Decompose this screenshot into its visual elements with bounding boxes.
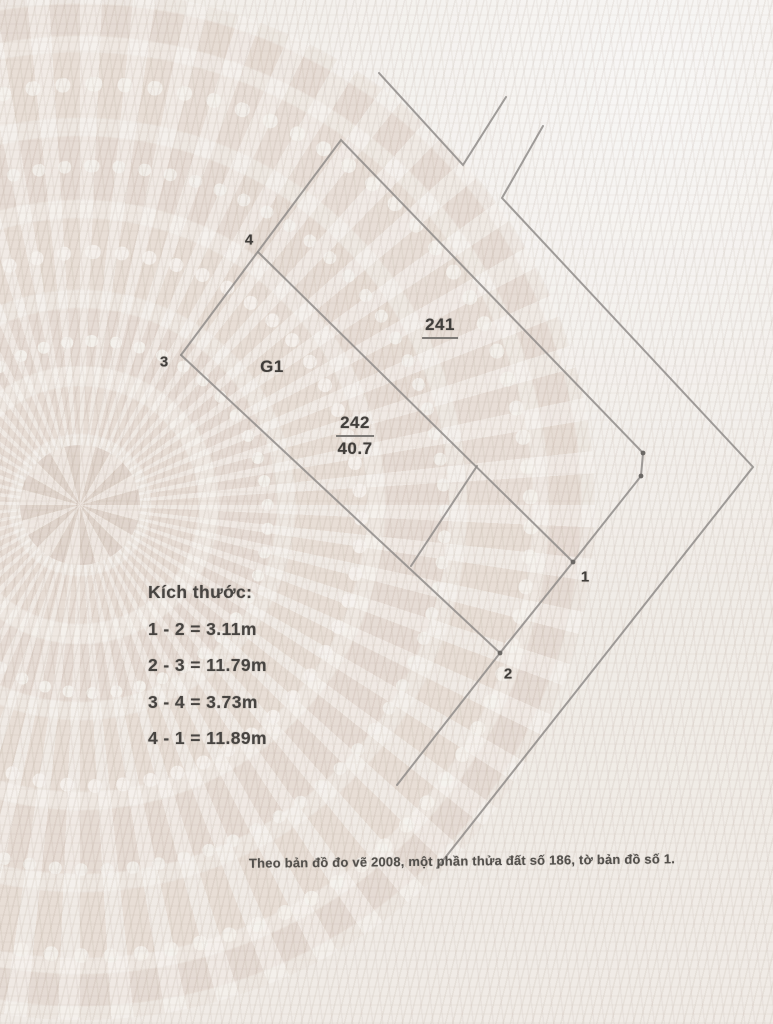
adjacent-parcel-label: 241 bbox=[422, 315, 458, 339]
dimension-item: 2 - 3 = 11.79m bbox=[148, 647, 267, 684]
vertex-label-2: 2 bbox=[504, 666, 512, 683]
scanned-land-certificate-sheet: 4 3 1 2 G1 241 242 40.7 Kích thước: 1 - … bbox=[0, 0, 773, 1024]
inner-division-line bbox=[411, 466, 477, 566]
parcel-code-label: G1 bbox=[260, 357, 284, 377]
parcel-boundary-lines bbox=[0, 0, 773, 1024]
corner-jog-to-point-1 bbox=[573, 453, 643, 562]
boundary-vertex-dot bbox=[641, 451, 646, 456]
parcel-number-area-fraction: 242 40.7 bbox=[336, 413, 374, 459]
dimensions-block: Kích thước: 1 - 2 = 3.11m 2 - 3 = 11.79m… bbox=[148, 574, 267, 757]
boundary-vertex-dot bbox=[498, 651, 503, 656]
edge-1-2-extended bbox=[397, 562, 573, 785]
dimension-item: 4 - 1 = 11.89m bbox=[148, 720, 267, 757]
edge-4-1 bbox=[258, 252, 573, 562]
dimensions-title: Kích thước: bbox=[148, 574, 267, 611]
vertex-label-1: 1 bbox=[581, 569, 589, 586]
boundary-vertex-dot bbox=[571, 560, 576, 565]
parcel-area-label: 40.7 bbox=[337, 437, 372, 459]
vertex-label-4: 4 bbox=[245, 232, 253, 249]
vertex-label-3: 3 bbox=[160, 354, 168, 371]
dimension-item: 3 - 4 = 3.73m bbox=[148, 684, 267, 721]
edge-3-4-extended-to-241 bbox=[181, 140, 643, 453]
parcel-sketch-layer: 4 3 1 2 G1 241 242 40.7 Kích thước: 1 - … bbox=[0, 0, 773, 1024]
boundary-vertex-dot bbox=[639, 474, 644, 479]
parcel-number-label: 242 bbox=[336, 413, 374, 437]
outer-boundary-zigzag bbox=[437, 126, 753, 868]
detached-corner-v bbox=[379, 73, 506, 165]
dimension-item: 1 - 2 = 3.11m bbox=[148, 611, 267, 648]
